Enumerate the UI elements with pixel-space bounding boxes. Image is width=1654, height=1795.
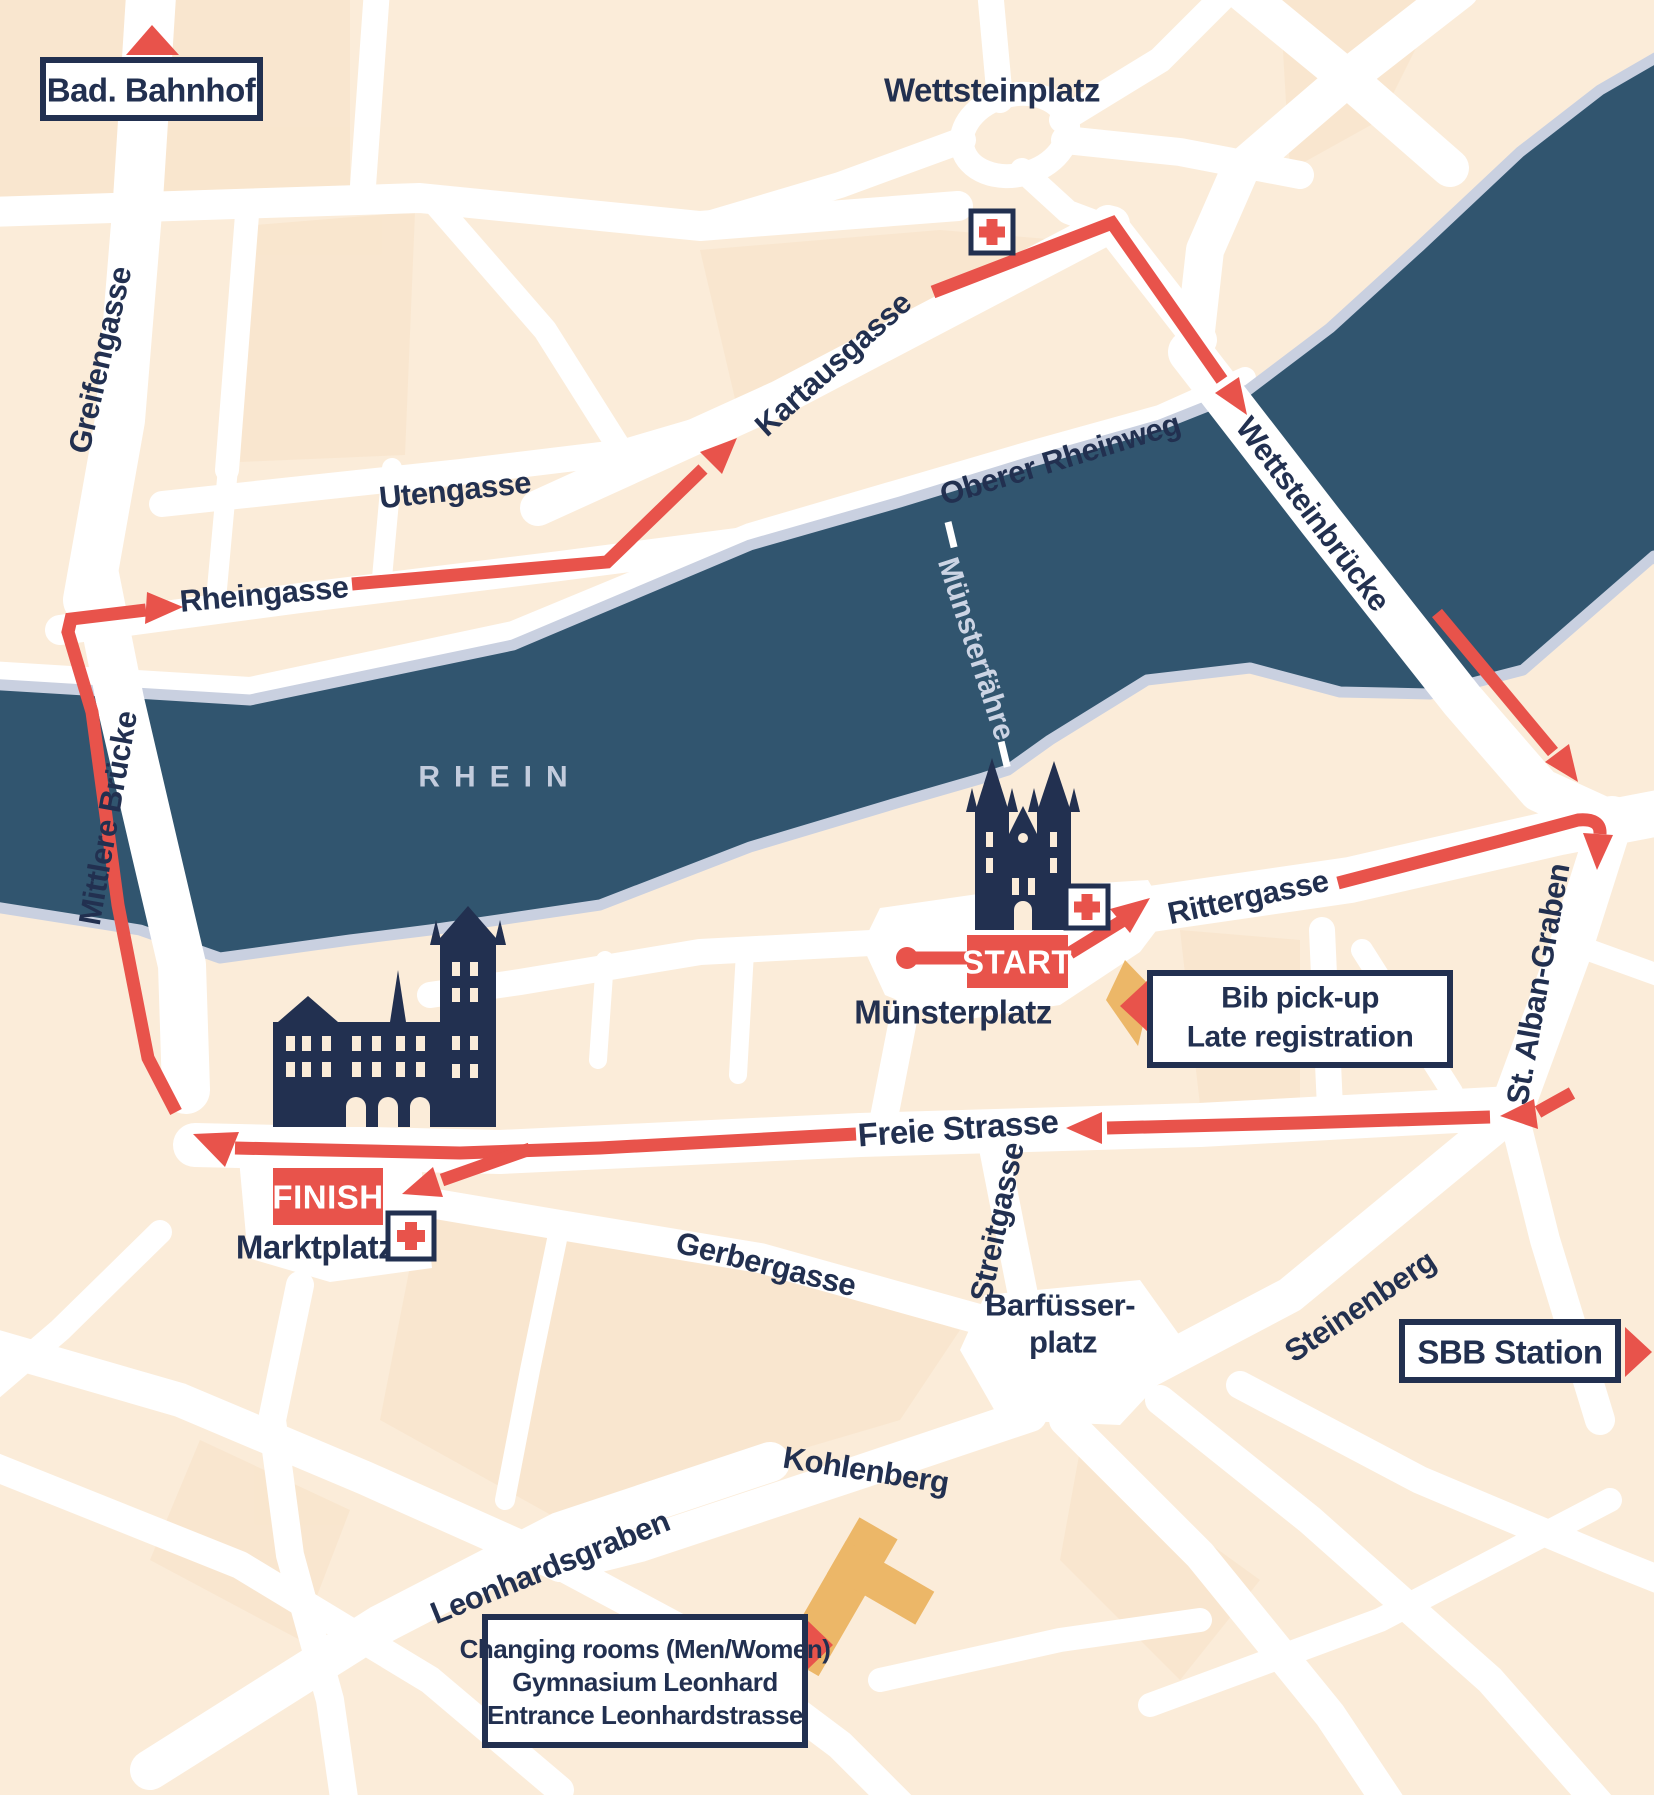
bad-bahnhof-label: Bad. Bahnhof	[47, 72, 257, 109]
place-label-muensterplatz: Münsterplatz	[854, 994, 1052, 1031]
basel-course-map: RHEIN Münsterfähre Greifengasse Utengass…	[0, 0, 1654, 1795]
first-aid-icon	[971, 211, 1013, 253]
street-segment	[362, 0, 377, 200]
changing-rooms-line1: Changing rooms (Men/Women)	[460, 1634, 831, 1664]
street-segment	[738, 952, 745, 1075]
bib-pickup-line2: Late registration	[1187, 1021, 1414, 1054]
place-label-marktplatz: Marktplatz	[236, 1229, 394, 1266]
start-label: START	[962, 944, 1072, 981]
changing-rooms-line2: Gymnasium Leonhard	[512, 1667, 778, 1697]
finish-label: FINISH	[272, 1179, 383, 1216]
first-aid-icon	[1066, 886, 1108, 928]
street-segment	[598, 960, 605, 1060]
sbb-station-callout: SBB Station	[1402, 1322, 1618, 1380]
river-name-label: RHEIN	[418, 761, 581, 794]
sbb-station-label: SBB Station	[1417, 1334, 1602, 1371]
changing-rooms-line3: Entrance Leonhardstrasse	[487, 1700, 803, 1730]
place-label-wettsteinplatz: Wettsteinplatz	[884, 72, 1100, 109]
first-aid-icon	[388, 1213, 434, 1259]
start-marker: START	[962, 935, 1072, 988]
place-label-barfuesserplatz-line2: platz	[1029, 1325, 1097, 1360]
changing-rooms-callout: Changing rooms (Men/Women) Gymnasium Leo…	[460, 1617, 831, 1745]
bib-pickup-line1: Bib pick-up	[1221, 982, 1379, 1015]
bib-pickup-callout: Bib pick-up Late registration	[1150, 973, 1450, 1065]
finish-marker: FINISH	[272, 1168, 383, 1225]
place-label-barfuesserplatz-line1: Barfüsser-	[985, 1288, 1135, 1323]
route-start-dot-icon	[896, 947, 918, 969]
course-map-canvas: RHEIN Münsterfähre Greifengasse Utengass…	[0, 0, 1654, 1795]
bad-bahnhof-callout: Bad. Bahnhof	[43, 60, 260, 118]
